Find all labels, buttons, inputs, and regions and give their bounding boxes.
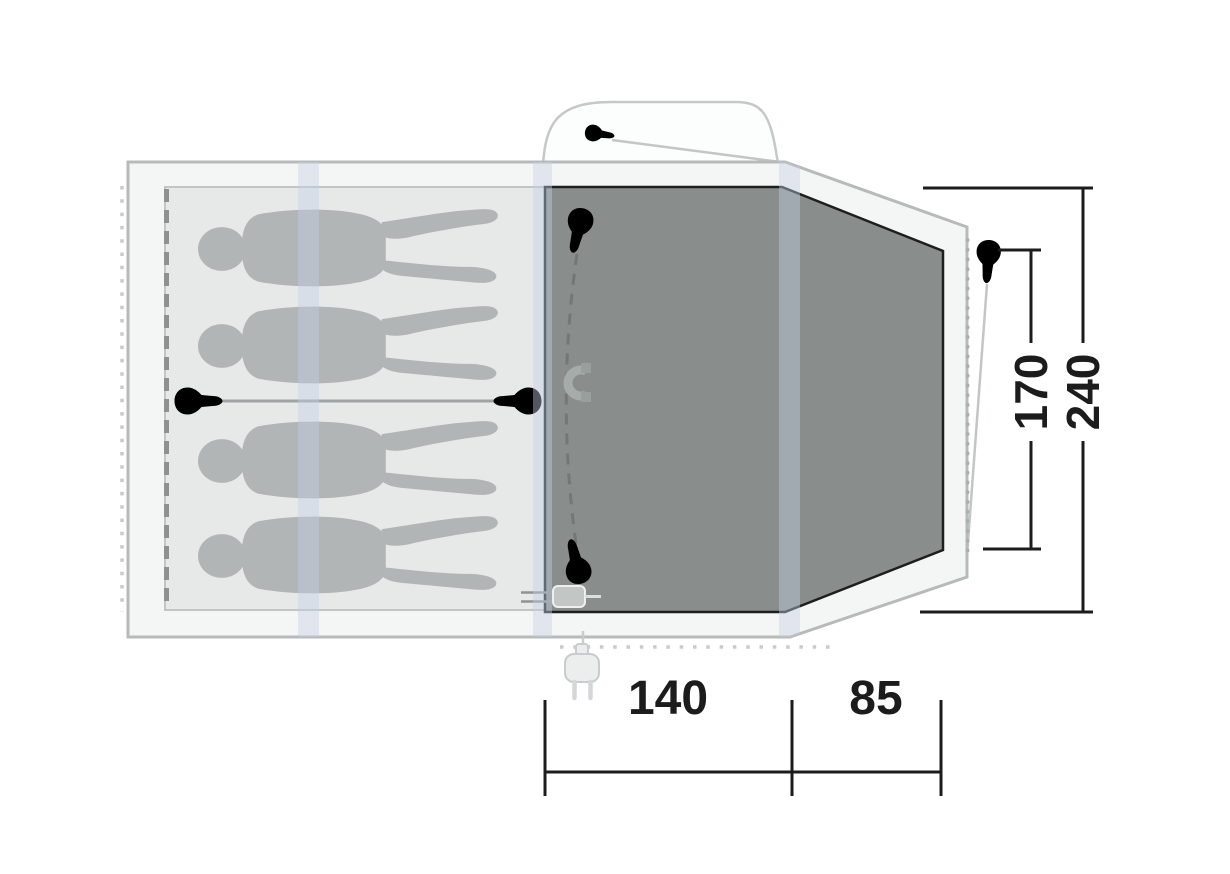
pole-sleeve <box>298 160 319 640</box>
power-plug-icon <box>565 631 599 698</box>
dimension-label-inner-width: 140 <box>628 672 708 725</box>
dimension-170: 170 <box>983 250 1057 549</box>
pole-sleeve <box>779 160 800 640</box>
tent-hood-outline <box>543 102 778 164</box>
dimension-bottom: 140 85 <box>545 672 941 796</box>
pole-sleeve <box>533 160 552 640</box>
tent-floorplan-diagram: 240 170 140 85 <box>0 0 1230 874</box>
tent-floorplan-page: 240 170 140 85 <box>0 0 1230 874</box>
peg-icon-right <box>974 239 1001 284</box>
dimension-label-inner-depth: 170 <box>1005 354 1057 431</box>
dimension-label-total-depth: 240 <box>1057 354 1109 431</box>
living-area <box>545 187 943 612</box>
dimension-label-porch-width: 85 <box>849 672 902 725</box>
